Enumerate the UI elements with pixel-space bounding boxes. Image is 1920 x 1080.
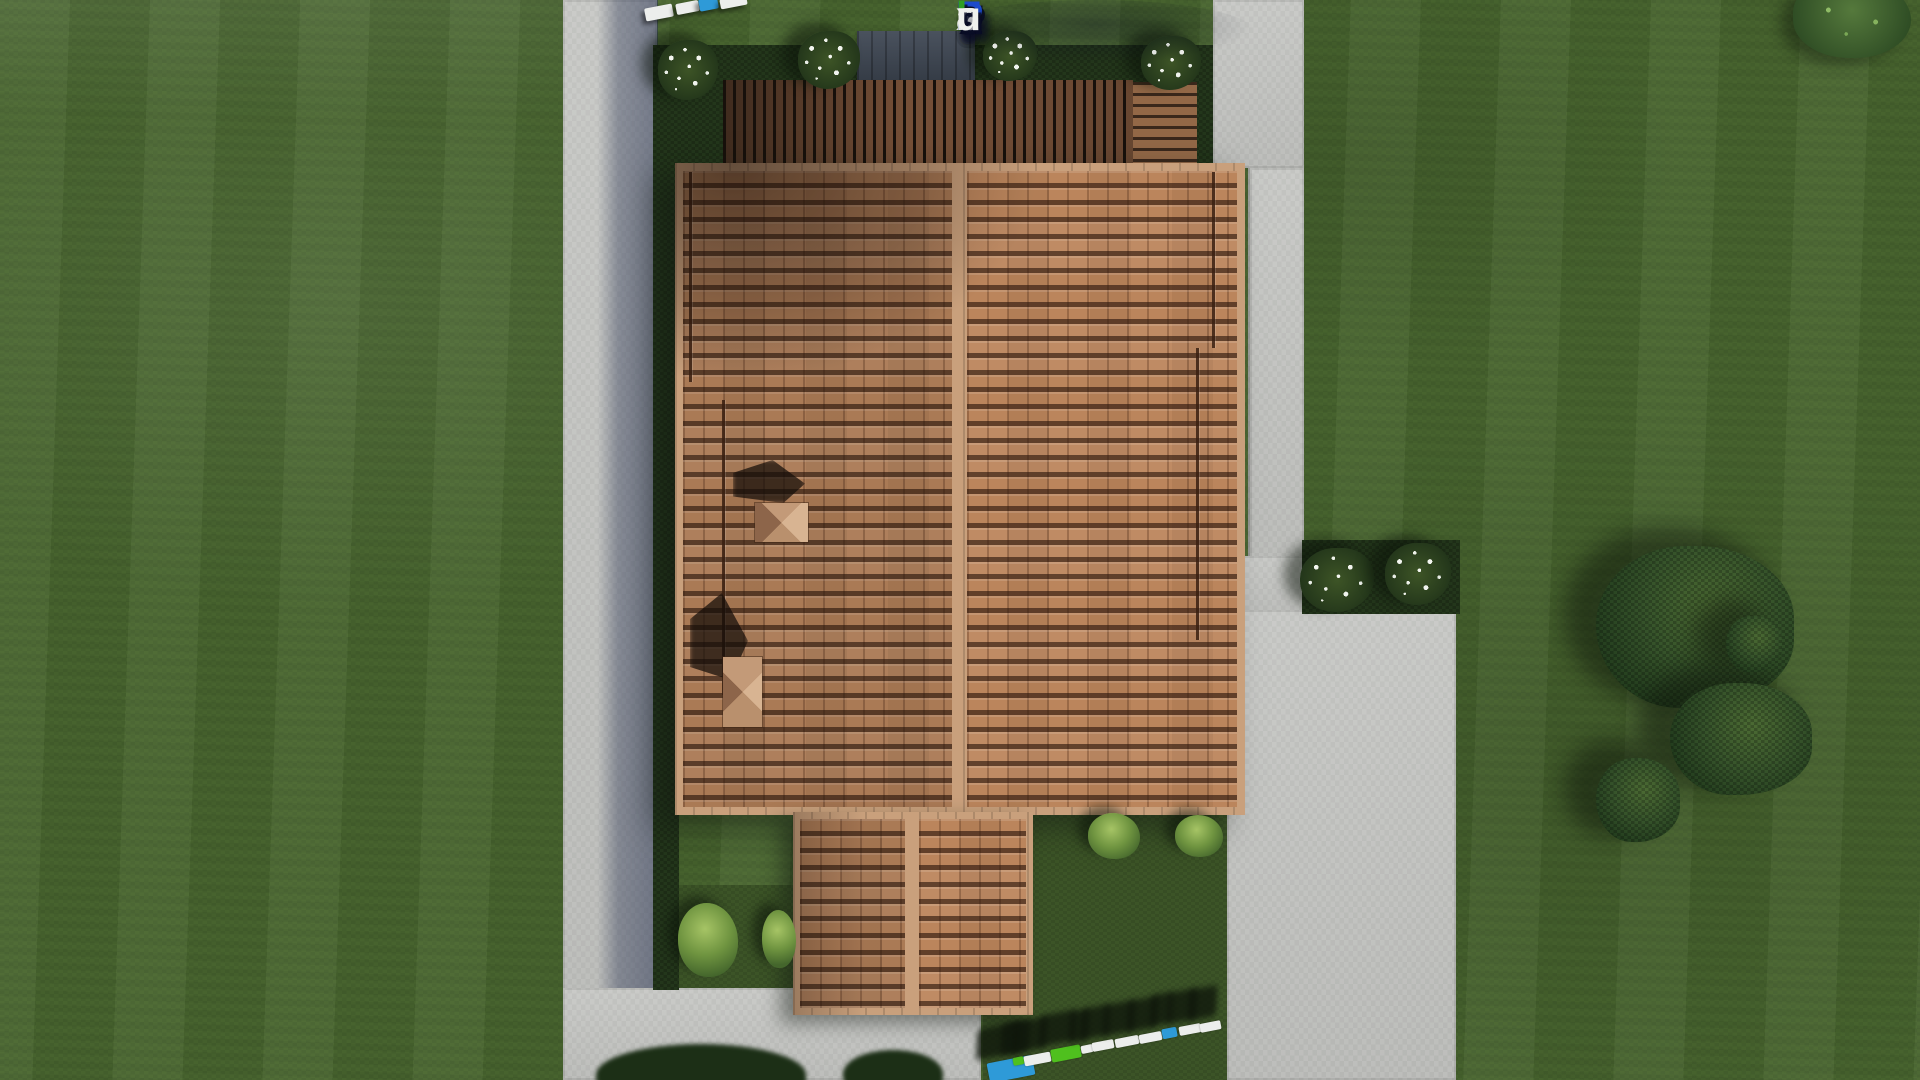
stepping-stone: [719, 0, 747, 9]
aerial-site-render: FixPlans.ru: [0, 0, 1920, 1080]
stepping-stone: [1050, 1044, 1082, 1062]
watermark-letter: u: [956, 0, 981, 41]
stepping-stone-layer: [0, 0, 1920, 1080]
stepping-stone: [698, 0, 719, 12]
stepping-stone: [675, 0, 700, 15]
stepping-stone: [1178, 1023, 1201, 1036]
stepping-stone: [1199, 1020, 1221, 1033]
stepping-stone: [1161, 1027, 1178, 1040]
stepping-stone: [1091, 1039, 1114, 1052]
stepping-stone: [1023, 1052, 1051, 1067]
stone-shadow: [1187, 985, 1217, 1021]
stepping-stone: [1138, 1031, 1162, 1044]
stepping-stone: [1114, 1035, 1139, 1048]
stepping-stone: [644, 3, 674, 21]
